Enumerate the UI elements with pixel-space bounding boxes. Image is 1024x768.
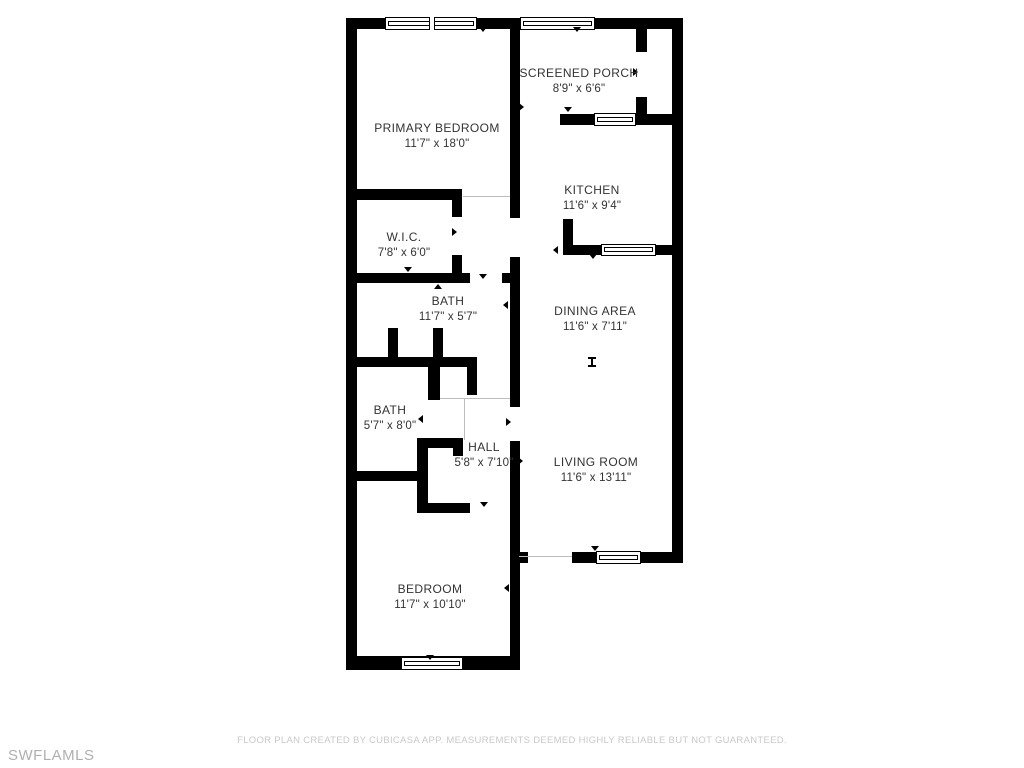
mls-watermark: SWFLAMLS bbox=[8, 747, 95, 764]
wall-tick-icon bbox=[672, 456, 677, 464]
room-label-dining-area: DINING AREA 11'6" x 7'11" bbox=[554, 304, 636, 333]
wall-tick-icon bbox=[426, 655, 434, 660]
open-boundary-line bbox=[463, 196, 510, 197]
wall-tick-icon bbox=[348, 396, 353, 404]
wall-tick-icon bbox=[348, 103, 353, 111]
window-primary-bedroom bbox=[385, 17, 477, 30]
living-bottom-wall-mid bbox=[572, 552, 598, 563]
open-boundary-line bbox=[519, 556, 572, 557]
wall-tick-icon bbox=[479, 274, 487, 279]
wall-tick-icon bbox=[404, 267, 412, 272]
living-bottom-nub bbox=[519, 552, 528, 563]
window-screened-porch-top bbox=[520, 17, 595, 30]
wall-tick-icon bbox=[398, 190, 406, 195]
right-wall bbox=[672, 18, 683, 563]
wall-tick-icon bbox=[591, 546, 599, 551]
room-dimensions: 11'7" x 18'0" bbox=[374, 138, 500, 150]
room-name: DINING AREA bbox=[554, 304, 636, 318]
room-name: PRIMARY BEDROOM bbox=[374, 121, 500, 135]
room-label-bath-2: BATH 5'7" x 8'0" bbox=[364, 403, 416, 432]
wall-tick-icon bbox=[348, 299, 353, 307]
wall-tick-icon bbox=[518, 457, 523, 465]
wall-tick-icon bbox=[672, 181, 677, 189]
wic-right-wall-upper bbox=[452, 189, 462, 217]
room-name: SCREENED PORCH bbox=[520, 66, 639, 80]
wall-tick-icon bbox=[348, 232, 353, 240]
bedroom-top-wall bbox=[417, 503, 470, 513]
window-kitchen-pass-through bbox=[601, 244, 656, 256]
room-label-wic: W.I.C. 7'8" x 6'0" bbox=[378, 230, 430, 259]
room-dimensions: 5'7" x 8'0" bbox=[364, 420, 416, 432]
wall-tick-icon bbox=[589, 254, 597, 259]
room-label-primary-bath: BATH 11'7" x 5'7" bbox=[419, 294, 477, 323]
wall-tick-icon bbox=[519, 103, 524, 111]
wall-tick-icon bbox=[418, 415, 423, 423]
wall-tick-icon bbox=[504, 584, 509, 592]
room-label-living-room: LIVING ROOM 11'6" x 13'11" bbox=[554, 455, 638, 484]
window-living-room bbox=[596, 551, 641, 564]
room-dimensions: 7'8" x 6'0" bbox=[378, 247, 430, 259]
wall-tick-icon bbox=[503, 301, 508, 309]
room-dimensions: 8'9" x 6'6" bbox=[520, 83, 639, 95]
room-dimensions: 11'7" x 5'7" bbox=[419, 311, 477, 323]
toilet-stub-right bbox=[433, 328, 443, 358]
room-dimensions: 11'7" x 10'10" bbox=[394, 599, 465, 611]
porch-bottom-wall-right bbox=[634, 114, 683, 125]
wall-tick-icon bbox=[434, 284, 442, 289]
column-icon bbox=[588, 357, 596, 367]
disclaimer-text: FLOOR PLAN CREATED BY CUBICASA APP. MEAS… bbox=[0, 735, 1024, 746]
room-name: W.I.C. bbox=[378, 230, 430, 244]
room-dimensions: 11'6" x 9'4" bbox=[563, 200, 621, 212]
room-name: BATH bbox=[364, 403, 416, 417]
wall-tick-icon bbox=[479, 27, 487, 32]
room-label-bedroom: BEDROOM 11'7" x 10'10" bbox=[394, 582, 465, 611]
central-wall-mid bbox=[510, 257, 520, 407]
kitchen-peninsula-stub bbox=[563, 219, 573, 247]
room-label-kitchen: KITCHEN 11'6" x 9'4" bbox=[563, 183, 621, 212]
room-name: LIVING ROOM bbox=[554, 455, 638, 469]
bath-bottom-wall bbox=[346, 357, 477, 367]
wall-tick-icon bbox=[452, 228, 457, 236]
wall-tick-icon bbox=[573, 27, 581, 32]
wall-tick-icon bbox=[480, 502, 488, 507]
left-wall bbox=[346, 18, 357, 670]
room-dimensions: 11'6" x 13'11" bbox=[554, 472, 638, 484]
room-dimensions: 11'6" x 7'11" bbox=[554, 321, 636, 333]
room-name: BEDROOM bbox=[394, 582, 465, 596]
open-boundary-line bbox=[464, 399, 465, 440]
wall-tick-icon bbox=[564, 107, 572, 112]
room-label-screened-porch: SCREENED PORCH 8'9" x 6'6" bbox=[520, 66, 639, 95]
bath2-bottom-wall bbox=[346, 471, 417, 481]
wall-tick-icon bbox=[506, 418, 511, 426]
wic-junction-nub bbox=[502, 273, 510, 283]
floor-plan-canvas: PRIMARY BEDROOM 11'7" x 18'0" SCREENED P… bbox=[0, 0, 1024, 768]
window-screened-porch-bottom bbox=[594, 113, 636, 126]
room-dimensions: 5'8" x 7'10" bbox=[454, 457, 513, 469]
niche-right-wall bbox=[467, 367, 477, 395]
room-label-primary-bedroom: PRIMARY BEDROOM 11'7" x 18'0" bbox=[374, 121, 500, 150]
wall-tick-icon bbox=[553, 246, 558, 254]
porch-bottom-wall-left bbox=[560, 114, 598, 125]
central-wall-upper bbox=[510, 18, 520, 218]
open-boundary-line bbox=[440, 398, 510, 399]
porch-right-wall-upper bbox=[636, 18, 647, 52]
bath2-right-wall bbox=[417, 438, 428, 513]
room-name: BATH bbox=[419, 294, 477, 308]
niche-left-wall bbox=[428, 367, 440, 400]
room-label-hall: HALL 5'8" x 7'10" bbox=[454, 440, 513, 469]
wall-tick-icon bbox=[348, 583, 353, 591]
living-bottom-wall-right bbox=[638, 552, 683, 563]
room-name: HALL bbox=[454, 440, 513, 454]
wall-tick-icon bbox=[672, 304, 677, 312]
toilet-stub-left bbox=[388, 328, 398, 358]
room-name: KITCHEN bbox=[563, 183, 621, 197]
wic-bottom-wall bbox=[346, 273, 470, 283]
